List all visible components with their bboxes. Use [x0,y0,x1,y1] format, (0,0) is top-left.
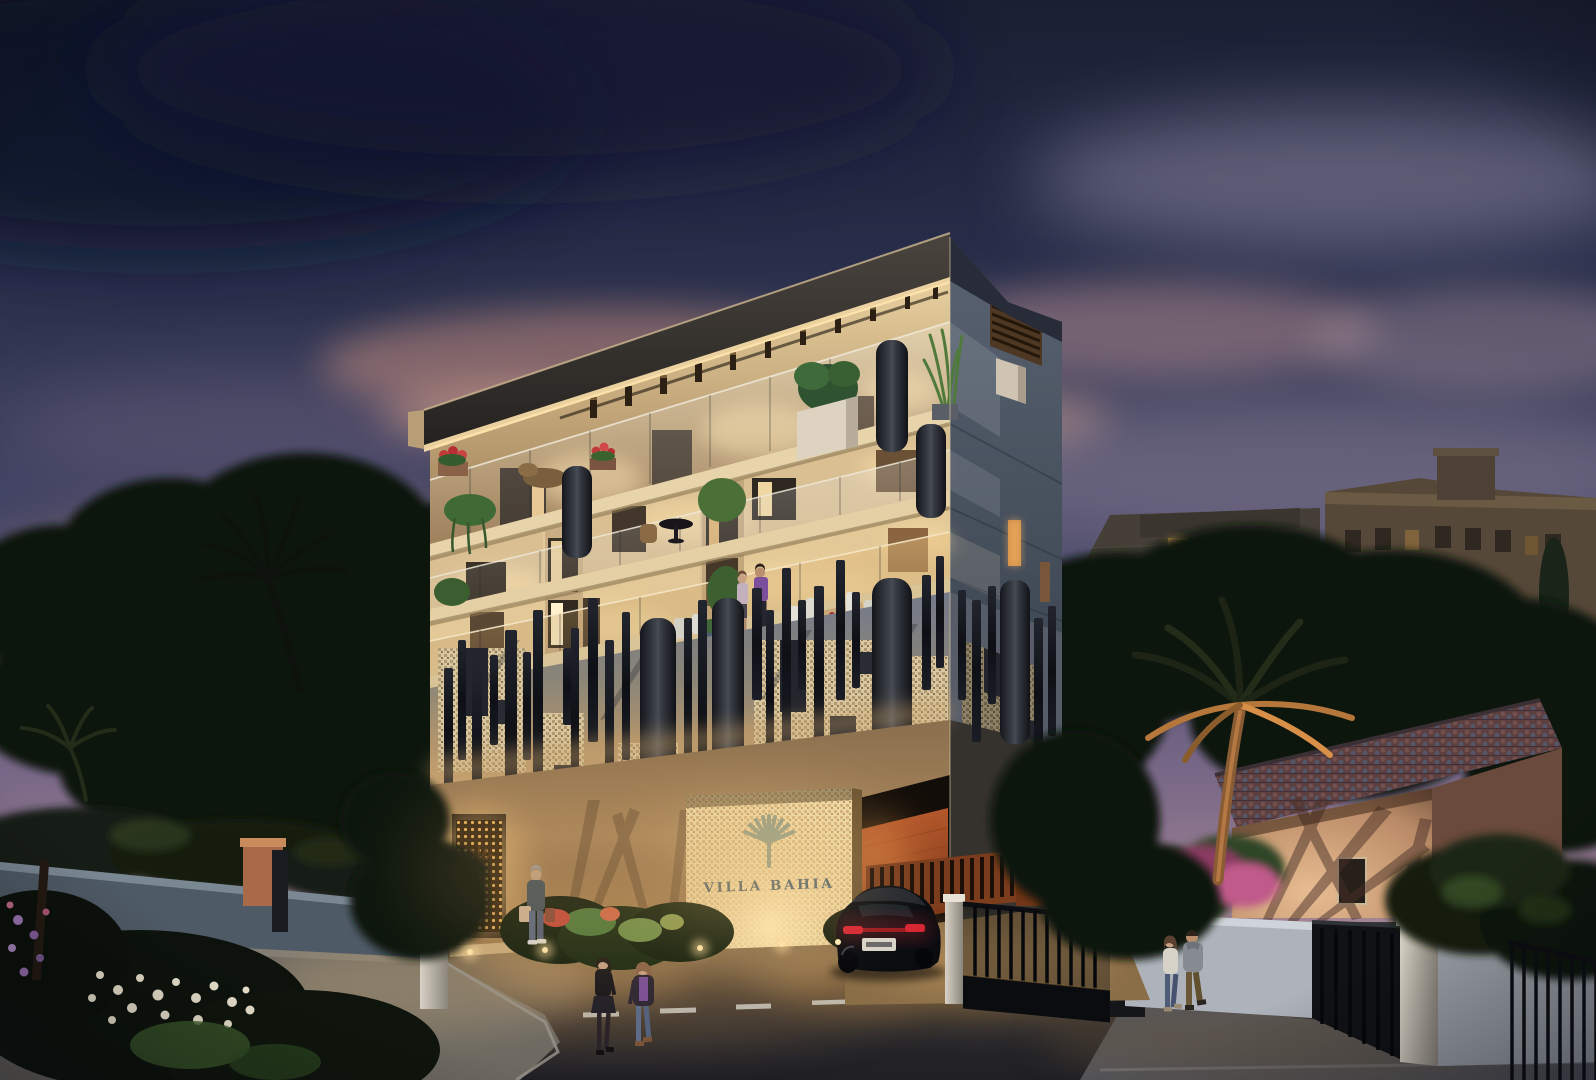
render-canvas: VILLA BAHIA [0,0,1596,1080]
scene: VILLA BAHIA [0,0,1596,1080]
vignette [0,0,1596,1080]
